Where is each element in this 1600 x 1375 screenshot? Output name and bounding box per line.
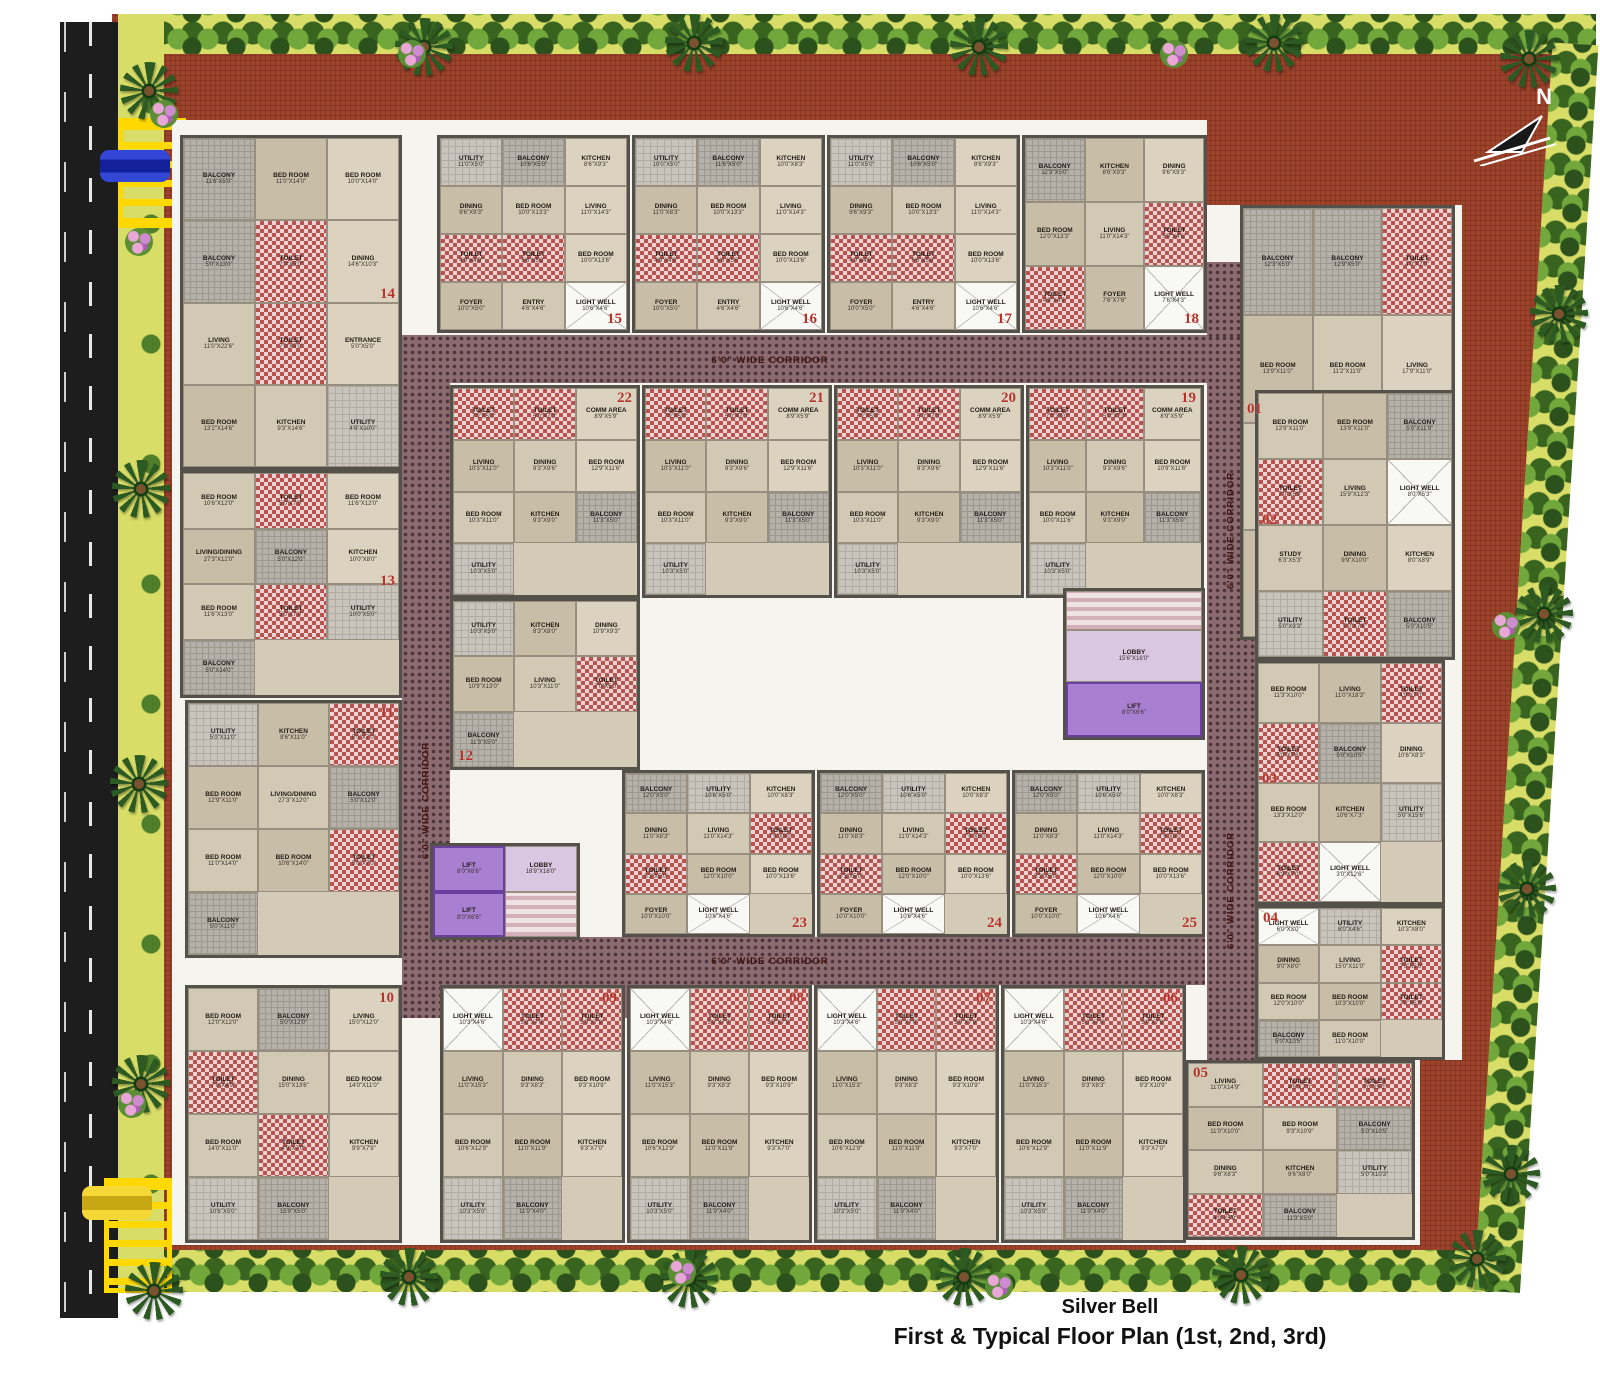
room-dimension-label: 9'3"X9'6" [533,466,557,473]
room-balcony: BALCONY12'0"X5'0" [1015,773,1077,813]
room-living: LIVING10'3"X11'0" [1029,440,1086,492]
compass-arrow-icon [1470,106,1560,166]
room-dimension-label: 15'0"X12'0" [349,1020,380,1027]
room-dining: DINING10'6"X8'3" [1381,723,1442,783]
room-name-label: ENTRY [913,299,935,306]
room-name-label: TOILET [850,251,873,258]
room-dimension-label: 9'3"X10'9" [1140,1083,1167,1090]
room-name-label: BED ROOM [701,867,737,874]
unit-24: BALCONY12'0"X5'0"UTILITY10'6"X5'0"KITCHE… [817,770,1010,937]
unit-15: UTILITY11'0"X5'0"BALCONY10'6"X5'0"KITCHE… [437,135,630,333]
room-balcony: BALCONY15'0"X5'0" [258,1177,328,1240]
room-dining: DINING9'3"X9'6" [514,440,575,492]
room-utility: UTILITY10'3"X5'0" [453,543,514,595]
room-kitchen: KITCHEN9'9"X7'9" [329,1114,399,1177]
unit-20: TOILET7'0"X5'0"TOILET5'0"X7'0"COMM AREA8… [834,385,1024,598]
palm-tree-icon [110,755,168,813]
room-dimension-label: 9'9"X10'0" [1341,558,1368,565]
unit-11: UTILITY5'0"X11'0"KITCHEN8'6"X11'0"TOILET… [185,700,402,958]
room-living: LIVING10'3"X11'0" [453,440,514,492]
room-bed-room: BED ROOM10'0"X13'3" [892,186,954,234]
room-name-label: BALCONY [1284,1208,1316,1215]
room-dimension-label: 9'3"X7'0" [580,1146,604,1153]
room-name-label: BED ROOM [588,459,624,466]
room-dimension-label: 15'6"X16'0" [1119,656,1150,663]
room-dimension-label: 12'3"X5'0" [1264,262,1291,269]
unit-21: TOILET7'0"X5'0"TOILET5'0"X7'0"COMM AREA8… [642,385,832,598]
room-dimension-label: 9'9"X7'9" [352,1146,376,1153]
room-dimension-label: 6'9"X7'0" [1277,872,1301,879]
room-dimension-label: 10'0"X8'3" [777,162,804,169]
room-name-label: BED ROOM [1091,867,1127,874]
room-utility: UTILITY10'3"X5'0" [630,1177,690,1240]
room-dimension-label: 7'0"X5'0" [1363,1085,1387,1092]
flower-bush-icon [150,100,178,128]
room-name-label: FOYER [850,299,872,306]
room-dimension-label: 10'3"X5'0" [470,569,497,576]
room-dimension-label: 10'6"X5'0" [910,162,937,169]
room-dimension-label: 5'0"X14'0" [205,668,232,675]
room-dimension-label: 7'0"X5'0" [1399,1001,1423,1008]
room-dimension-label: 10'3"X11'0" [469,518,499,525]
room-dimension-label: 11'0"X8'3" [1033,834,1060,841]
room-name-label: LIGHT WELL [699,907,739,914]
room-living: LIVING11'0"X14'3" [565,186,627,234]
room-name-label: UTILITY [663,562,688,569]
room-toilet: TOILET7'0"X5'0" [1381,983,1442,1020]
room-name-label: BED ROOM [761,1076,797,1083]
room-balcony: BALCONY11'6"X5'0" [183,138,255,220]
room-name-label: TOILET [769,827,792,834]
room-dimension-label: 7'6"X5'0" [769,834,793,841]
room-bed-room: BED ROOM10'3"X10'0" [1319,983,1380,1020]
room-dimension-label: 10'3"X5'0" [470,629,497,636]
room-name-label: TOILET [472,407,495,414]
room-name-label: UTILITY [1399,806,1424,813]
room-utility: UTILITY5'0"X15'6" [1381,783,1442,843]
unit-16: UTILITY10'0"X5'0"BALCONY11'6"X5'0"KITCHE… [632,135,825,333]
room-name-label: KITCHEN [349,1139,378,1146]
room-dimension-label: 5'0"X7'0" [279,612,303,619]
room-dimension-label: 10'6"X5'0" [900,793,927,800]
room-name-label: LIVING/DINING [196,549,242,556]
room-name-label: BED ROOM [273,172,309,179]
room-balcony: BALCONY5'0"X11'9" [1387,393,1452,459]
room-name-label: LIGHT WELL [1154,291,1194,298]
room-dimension-label: 5'0"X7'0" [352,735,376,742]
room-balcony: BALCONY5'0"X10'5" [1319,723,1380,783]
room-dimension-label: 6'6"X5'0" [522,258,546,265]
room-bed-room: BED ROOM12'0"X10'0" [1077,854,1139,894]
room-light-well: LIGHT WELL10'3"X4'6" [630,988,690,1051]
room-entry: ENTRY4'6"X4'6" [892,282,954,330]
room-name-label: BED ROOM [201,494,237,501]
room-dimension-label: 11'0"X4'0" [706,1209,733,1216]
room-bed-room: BED ROOM12'0"X10'0" [687,854,749,894]
flower-bush-icon [1492,612,1520,640]
room-name-label: BED ROOM [515,1139,551,1146]
room-dimension-label: 14'0"X11'0" [208,1146,238,1153]
room-name-label: BALCONY [835,786,867,793]
room-dimension-label: 8'0"X6'6" [1122,710,1146,717]
room-dimension-label: 11'0"X4'0" [1080,1209,1107,1216]
room-dimension-label: 10'6"X8'3" [1398,753,1425,760]
room-name-label: BED ROOM [773,251,809,258]
room-name-label: DINING [352,255,375,262]
room-bed-room: BED ROOM10'6"X14'0" [258,829,328,892]
room-name-label: TOILET [1343,617,1366,624]
plan-title: Silver Bell First & Typical Floor Plan (… [820,1296,1400,1350]
room-name-label: BALCONY [1156,511,1188,518]
room-balcony: BALCONY11'0"X4'0" [690,1177,750,1240]
room-dimension-label: 7'0"X5'0" [664,414,688,421]
room-name-label: KITCHEN [578,1139,607,1146]
room-dimension-label: 5'0"X12'0" [350,798,377,805]
room-name-label: ENTRANCE [345,337,381,344]
room-name-label: UTILITY [211,1202,236,1209]
room-name-label: DINING [1163,163,1186,170]
room-dimension-label: 6'3"X5'3" [1278,558,1302,565]
room-name-label: DINING [850,203,873,210]
room-kitchen: KITCHEN9'3"X9'0" [898,492,959,544]
room-balcony: BALCONY5'0"X12'0" [255,529,327,585]
room-dimension-label: 10'3"X11'0" [853,466,883,473]
room-living: LIVING10'3"X11'0" [514,656,575,711]
room-name-label: TOILET [280,255,303,262]
room-dimension-label: 9'3"X8'3" [708,1083,732,1090]
room-name-label: LIGHT WELL [1014,1013,1054,1020]
room-bed-room: BED ROOM11'0"X11'9" [690,1114,750,1177]
room-dimension-label: 14'6"X10'3" [348,262,379,269]
room-dimension-label: 5'0"X7'0" [895,1020,919,1027]
room-name-label: TOILET [1363,1078,1386,1085]
room-bed-room: BED ROOM10'3"X11'0" [453,492,514,544]
corridor-label-top: 6'0" WIDE CORRIDOR [560,340,980,380]
room-name-label: TOILET [1082,1013,1105,1020]
room-dimension-label: 7'6"X7'6" [1103,298,1127,305]
room-name-label: KITCHEN [531,622,560,629]
room-name-label: TOILET [917,407,940,414]
room-name-label: UTILITY [654,155,679,162]
room-living: LIVING11'0"X22'6" [183,303,255,385]
room-bed-room: BED ROOM12'0"X13'3" [1025,202,1085,266]
room-name-label: BED ROOM [201,419,237,426]
room-name-label: LIGHT WELL [640,1013,680,1020]
room-toilet: TOILET6'9"X7'0" [1258,842,1319,902]
room-name-label: BALCONY [207,917,239,924]
room-name-label: BED ROOM [889,1139,925,1146]
room-dimension-label: 11'0"X4'0" [519,1209,546,1216]
room-dimension-label: 4'9"X5'9" [1213,1216,1237,1223]
room-name-label: TOILET [664,407,687,414]
room-foyer: FOYER10'0"X5'0" [830,282,892,330]
room-dimension-label: 4'9"X7'0" [1288,1085,1312,1092]
room-dimension-label: 7'0"X5'0" [279,344,303,351]
room-name-label: DINING [1277,957,1300,964]
room-name-label: BED ROOM [578,251,614,258]
compass: N [1470,84,1580,174]
room-dimension-label: 4'9"X7'0" [1399,693,1423,700]
room-dimension-label: 11'0"X14'3" [1099,234,1129,241]
room-balcony: BALCONY11'6"X5'0" [697,138,759,186]
room-living: LIVING11'0"X14'3" [687,813,749,853]
palm-tree-icon [1482,1145,1540,1203]
room-toilet: TOILET5'0"X7'0" [514,388,575,440]
room-name-label: TOILET [1103,407,1126,414]
room-utility: UTILITY5'0"X9'3" [1258,591,1323,657]
room-name-label: LIVING [1023,1076,1045,1083]
room-toilet: TOILET6'6"X5'0" [697,234,759,282]
room-name-label: TOILET [1043,291,1066,298]
unit-core-right: LOBBY15'6"X16'0"LIFT8'0"X6'6" [1063,588,1205,740]
room-name-label: FOYER [655,299,677,306]
room-dimension-label: 9'3"X10'9" [579,1083,606,1090]
room-light-well: LIGHT WELL10'6"X4'6" [882,894,944,934]
room-name-label: LIVING [1104,227,1126,234]
room-living: LIVING11'0"X14'3" [1085,202,1145,266]
room-name-label: LOBBY [530,862,553,869]
unit-number-label: 05 [1193,1065,1208,1082]
room-name-label: FOYER [840,907,862,914]
room-bed-room: BED ROOM10'3"X11'0" [645,492,706,544]
room-name-label: BED ROOM [201,605,237,612]
room-name-label: DINING [521,1076,544,1083]
room-utility: UTILITY4'9"X10'0" [327,385,399,467]
room-dimension-label: 10'3"X11'0" [853,518,883,525]
room-living: LIVING11'0"X14'3" [1077,813,1139,853]
room-dimension-label: 5'0"X11'9" [1406,426,1433,433]
room-dimension-label: 9'3"X7'0" [1141,1146,1165,1153]
unit-number-label: 08 [789,990,804,1007]
room-name-label: TOILET [1400,686,1423,693]
room-toilet: TOILET7'6"X5'0" [1140,813,1202,853]
room-living: LIVING11'0"X14'3" [760,186,822,234]
room-dimension-label: 10'6"X12'9" [458,1146,489,1153]
room-dimension-label: 10'3"X4'6" [1020,1020,1047,1027]
room-dimension-label: 12'3"X5'0" [1041,170,1068,177]
room-name-label: KITCHEN [277,419,306,426]
room-bed-room: BED ROOM10'0"X13'3" [697,186,759,234]
room-balcony: BALCONY11'3"X5'0" [576,492,637,544]
room-name-label: LIVING [836,1076,858,1083]
room-dimension-label: 9'3"X9'0" [917,518,941,525]
room-name-label: BED ROOM [1207,1121,1243,1128]
room-toilet: TOILET5'0"X7'0" [898,388,959,440]
room-dimension-label: 11'0"X14'3" [776,210,806,217]
room-dimension-label: 11'0"X22'6" [204,344,234,351]
room-name-label: BALCONY [203,660,235,667]
room-dimension-label: 12'0"X10'0" [703,874,734,881]
room-name-label: BED ROOM [345,172,381,179]
room-dimension-label: 5'3"X5'0" [1034,874,1058,881]
room-bed-room: BED ROOM11'6"X12'0" [327,473,399,529]
room-dimension-label: 10'0"X5'0" [848,306,875,313]
room-name-label: DINING [1035,827,1058,834]
room-name-label: KITCHEN [1101,511,1130,518]
room-dimension-label: 5'0"X10'5" [1275,1039,1302,1046]
room-name-label: LIVING [975,203,997,210]
room-name-label: BED ROOM [968,251,1004,258]
room-name-label: LOBBY [1123,649,1146,656]
unit-number-label: 17 [997,311,1012,328]
room-name-label: KITCHEN [915,511,944,518]
room-utility: UTILITY10'0"X5'0" [635,138,697,186]
room-name-label: BED ROOM [205,1013,241,1020]
room-dining: DINING9'9"X10'0" [1323,525,1388,591]
room-utility: UTILITY11'0"X5'0" [440,138,502,186]
room-dimension-label: 5'0"X7'0" [1082,1020,1106,1027]
room-dimension-label: 5'0"X7'6" [1277,753,1301,760]
room-name-label: BALCONY [907,155,939,162]
room-name-label: KITCHEN [1405,551,1434,558]
room-living: LIVING11'0"X15'3" [630,1051,690,1114]
room-name-label: BALCONY [1404,617,1436,624]
room-name-label: TOILET [955,1013,978,1020]
room-dimension-label: 11'0"X14'3" [898,834,928,841]
palm-tree-icon [1448,1230,1506,1288]
room-name-label: LIVING [665,459,687,466]
room-dimension-label: 13'2"X14'6" [204,426,235,433]
room-toilet: TOILET4'9"X5'9" [1188,1194,1263,1238]
room-dining: DINING11'0"X8'3" [625,813,687,853]
room-toilet: TOILET4'9"X4'9" [830,234,892,282]
unit-number-label: 07 [976,990,991,1007]
room-bed-room: BED ROOM12'0"X10'0" [1258,983,1319,1020]
room-dimension-label: 10'0"X13'6" [776,258,807,265]
room-dimension-label: 5'0"X13'0" [205,262,232,269]
room-living-dining: LIVING/DINING27'3"X12'0" [183,529,255,585]
room-foyer: FOYER10'0"X5'0" [440,282,502,330]
unit-25: BALCONY12'0"X5'0"UTILITY10'6"X5'0"KITCHE… [1012,770,1205,937]
room-name-label: LIVING [649,1076,671,1083]
room-name-label: LIFT [1127,703,1141,710]
room-dimension-label: 10'0"X5'0" [653,162,680,169]
room-dimension-label: 10'6"X5'0" [520,162,547,169]
unit-08: LIGHT WELL10'3"X4'6"TOILET5'0"X7'0"TOILE… [627,985,812,1243]
room-name-label: LIVING [1406,362,1428,369]
room-dimension-label: 11'3"X5'0" [593,518,620,525]
room-utility: UTILITY10'3"X5'0" [453,601,514,656]
room-bed-room: BED ROOM10'6"X12'9" [630,1114,690,1177]
room-kitchen: KITCHEN10'0"X8'3" [760,138,822,186]
room-name-label: BED ROOM [1337,419,1373,426]
room-dimension-label: 10'0"X5'0" [349,612,376,619]
room-foyer: FOYER10'0"X10'0" [820,894,882,934]
room-dimension-label: 18'9"X16'0" [526,869,557,876]
room-bed-room: BED ROOM10'0"X13'6" [955,234,1017,282]
room-bed-room: BED ROOM12'9"X11'0" [188,766,258,829]
room-dimension-label: 10'6"X12'9" [832,1146,863,1153]
room-name-label: BALCONY [275,549,307,556]
room-toilet: TOILET7'0"X5'0" [1337,1063,1412,1107]
room-dimension-label: 10'3"X5'0" [646,1209,673,1216]
room-name-label: LIVING/DINING [270,791,316,798]
room-balcony: BALCONY11'0"X4'0" [1064,1177,1124,1240]
room-balcony: BALCONY5'0"X12'0" [329,766,399,829]
room-toilet: TOILET4'9"X7'0" [1382,208,1452,315]
room-name-label: UTILITY [1338,920,1363,927]
room-dimension-label: 4'9"X4'9" [849,258,873,265]
room-name-label: STUDY [1279,551,1301,558]
room-kitchen: KITCHEN10'0"X8'3" [945,773,1007,813]
room-dining: DINING9'3"X8'3" [877,1051,937,1114]
room-name-label: KITCHEN [1336,806,1365,813]
room-name-label: DINING [708,1076,731,1083]
room-name-label: UTILITY [648,1202,673,1209]
room-name-label: LIVING [534,677,556,684]
room-name-label: TOILET [1277,865,1300,872]
room-dimension-label: 12'9"X11'6" [783,466,813,473]
unit-23: BALCONY12'0"X5'0"UTILITY10'6"X5'0"KITCHE… [622,770,815,937]
room-name-label: KITCHEN [279,728,308,735]
room-dimension-label: 5'3"X5'0" [644,874,668,881]
room-utility: UTILITY10'3"X5'0" [817,1177,877,1240]
room-dimension-label: 7'0"X5'0" [856,414,880,421]
room-name-label: COMM AREA [1152,407,1193,414]
room-name-label: DINING [918,459,941,466]
room-name-label: KITCHEN [723,511,752,518]
room-balcony: BALCONY11'0"X4'0" [877,1177,937,1240]
room-dimension-label: 9'3"X10'9" [953,1083,980,1090]
room-dimension-label: 5'3"X5'0" [839,874,863,881]
room-dimension-label: 11'6"X12'0" [348,501,378,508]
room-utility: UTILITY10'3"X5'0" [837,543,898,595]
room-dimension-label: 6'6"X5'0" [717,258,741,265]
room-dining: DINING11'0"X8'3" [1015,813,1077,853]
room-name-label: BALCONY [203,255,235,262]
room-dimension-label: 27'3"X12'0" [278,798,309,805]
unit-02: BED ROOM13'9"X11'0"BED ROOM13'9"X11'0"BA… [1255,390,1455,660]
room-entrance: ENTRANCE5'0"X5'0" [327,303,399,385]
room-kitchen: KITCHEN9'3"X14'6" [255,385,327,467]
room-name-label: UTILITY [351,419,376,426]
room-toilet: TOILET6'6"X5'0" [502,234,564,282]
room-dining: DINING9'3"X8'3" [503,1051,563,1114]
room-dimension-label: 11'0"X8'3" [653,210,680,217]
room-utility: UTILITY10'3"X5'0" [443,1177,503,1240]
room-name-label: BALCONY [1331,255,1363,262]
room-toilet: TOILET4'9"X7'0" [1263,1063,1338,1107]
room-dining: DINING9'3"X9'6" [898,440,959,492]
room-kitchen: KITCHEN9'3"X9'0" [1086,492,1143,544]
room-bed-room: BED ROOM10'0"X13'6" [750,854,812,894]
room-dimension-label: 10'3"X4'6" [833,1020,860,1027]
room-toilet: TOILET5'0"X7'0" [329,829,399,892]
room-name-label: BED ROOM [658,511,694,518]
room-dimension-label: 11'0"X14'9" [1210,1085,1240,1092]
room-name-label: BED ROOM [205,854,241,861]
room-name-label: LIVING [473,459,495,466]
room-dimension-label: 9'6"X8'3" [1213,1172,1237,1179]
room-dimension-label: 10'6"X7'3" [1336,813,1363,820]
room-dimension-label: 5'0"X7'0" [279,501,303,508]
room-bed-room: BED ROOM10'0"X13'6" [945,854,1007,894]
room-name-label: DINING [595,622,618,629]
room-name-label: TOILET [840,867,863,874]
room-dimension-label: 8'6"X9'3" [584,162,608,169]
room-dimension-label: 10'0"X13'6" [766,874,797,881]
room-name-label: KITCHEN [1139,1139,1168,1146]
unit-number-label: 14 [380,286,395,303]
room-balcony: BALCONY11'3"X5'0" [1144,492,1201,544]
room-dimension-label: 9'3"X9'6" [725,466,749,473]
room-name-label: BED ROOM [1332,994,1368,1001]
room-dimension-label: 11'0"X18'3" [1335,693,1365,700]
room-dimension-label: 10'0"X11'6" [1043,518,1073,525]
room-dimension-label: 11'0"X11'9" [892,1146,922,1153]
room-dimension-label: 7'6"X5'0" [1159,834,1183,841]
room-dimension-label: 10'6"X4'6" [972,306,999,313]
